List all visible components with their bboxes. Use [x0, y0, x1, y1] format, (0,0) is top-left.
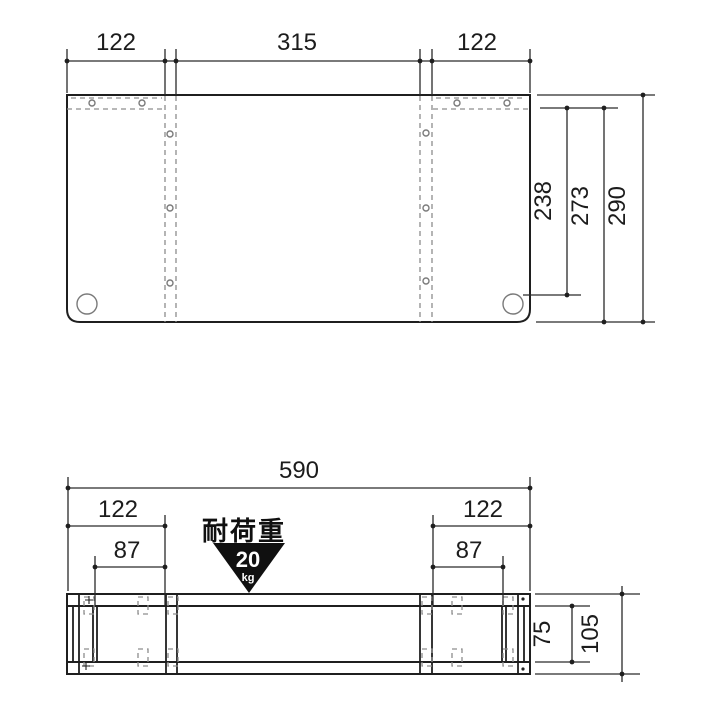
front-view-left-dimensions: 122 87 [66, 496, 168, 605]
screw-hole [167, 131, 173, 137]
cable-hole-right [503, 294, 523, 314]
top-view-board-outline [67, 95, 530, 322]
cable-hole-left [77, 294, 97, 314]
screw-hole [423, 130, 429, 136]
dim-label-depth-273: 273 [567, 186, 594, 226]
top-view: 122 315 122 238 273 290 [65, 29, 655, 324]
screw-hole [504, 100, 510, 106]
dim-label-right-122: 122 [463, 496, 503, 523]
screw-hole [454, 100, 460, 106]
load-capacity-title: 耐荷重 [202, 516, 286, 546]
furniture-dimension-diagram: 122 315 122 238 273 290 [0, 0, 713, 713]
screw-hole [167, 280, 173, 286]
dim-label-top-left: 122 [96, 29, 136, 56]
load-capacity-value: 20 [236, 547, 260, 572]
dim-label-top-right: 122 [457, 29, 497, 56]
front-view-right-dimensions: 122 87 [431, 496, 533, 605]
dim-label-right-87: 87 [456, 537, 483, 564]
top-view-depth-dimension: 238 273 290 [523, 93, 655, 325]
dim-label-left-122: 122 [98, 496, 138, 523]
dim-label-depth-238: 238 [530, 181, 557, 221]
top-view-width-dimension: 122 315 122 [65, 29, 533, 95]
dim-label-75: 75 [529, 621, 556, 648]
front-view-height-dimensions: 75 105 [529, 586, 640, 682]
dim-label-105: 105 [577, 614, 604, 654]
dim-label-depth-290: 290 [604, 186, 631, 226]
screw-cross [82, 662, 90, 670]
screw-hole [423, 205, 429, 211]
load-capacity-badge: 耐荷重 20 kg [202, 516, 286, 593]
dim-label-top-center: 315 [277, 29, 317, 56]
front-view: 590 122 87 122 87 [66, 457, 640, 682]
front-view-total-width-dimension: 590 [66, 457, 533, 591]
load-capacity-unit: kg [242, 572, 255, 584]
screw-hole [139, 100, 145, 106]
screw-dot [521, 667, 524, 670]
screw-hole [167, 205, 173, 211]
dimension-drawing-page: 122 315 122 238 273 290 [0, 0, 713, 713]
hidden-fastener-marks [84, 597, 513, 666]
screw-hole [89, 100, 95, 106]
screw-hole [423, 278, 429, 284]
dim-label-left-87: 87 [114, 537, 141, 564]
dim-label-590: 590 [279, 457, 319, 484]
screw-dot [521, 597, 524, 600]
